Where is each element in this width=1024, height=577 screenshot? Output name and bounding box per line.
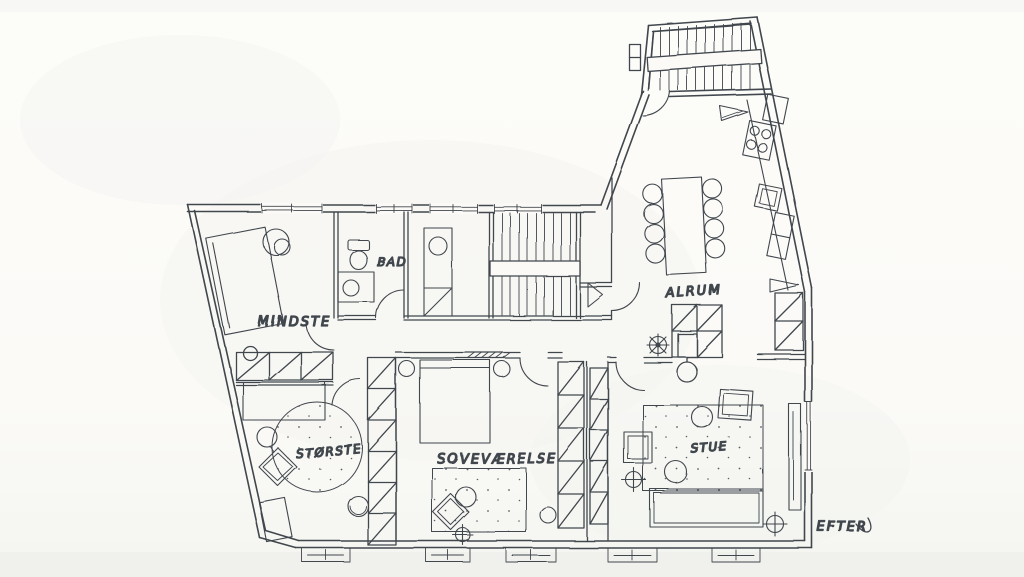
room-label-sovevaerelse: SOVEVÆRELSE: [437, 452, 557, 467]
staircase-main: [629, 22, 761, 90]
floor-plan: MINDSTE BAD STØRSTE SOVEVÆRELSE ALRUM ST…: [0, 0, 1024, 577]
stool: [540, 507, 556, 523]
window: [429, 203, 478, 214]
door-arc: [643, 91, 670, 116]
shelf: [259, 498, 292, 542]
room-label-bad: BAD: [377, 255, 407, 269]
window: [493, 203, 542, 214]
window: [261, 203, 323, 214]
paper-sheet: MINDSTE BAD STØRSTE SOVEVÆRELSE ALRUM ST…: [0, 0, 1024, 577]
ceiling-fan-icon: [647, 334, 669, 356]
rug: [432, 468, 526, 532]
wardrobe-right-wall: [775, 293, 803, 350]
stool: [348, 496, 368, 516]
plan-annotation-efter: EFTER: [817, 520, 868, 535]
room-label-mindste: MINDSTE: [258, 315, 331, 330]
kitchen-counter: [720, 94, 799, 292]
window: [804, 402, 813, 472]
room-label-stue: STUE: [691, 439, 729, 456]
room-label-alrum: ALRUM: [665, 283, 723, 302]
window: [375, 203, 413, 214]
